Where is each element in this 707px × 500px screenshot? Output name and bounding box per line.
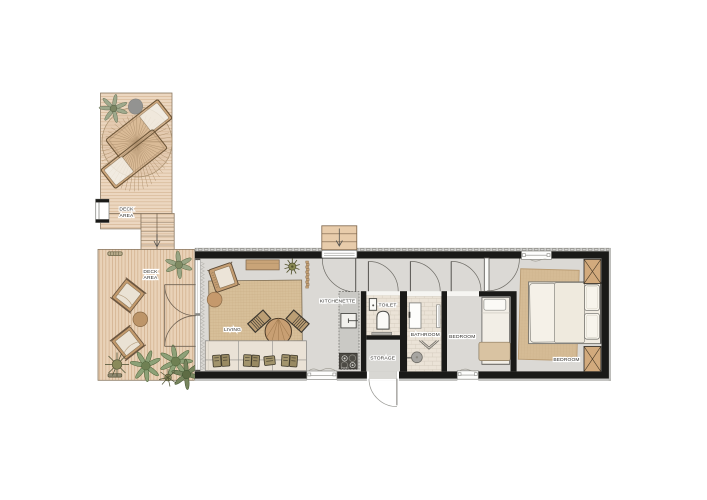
svg-text:DECK: DECK — [119, 207, 134, 213]
svg-text:KITCHENETTE: KITCHENETTE — [320, 298, 356, 304]
svg-text:LIVING: LIVING — [224, 327, 241, 333]
svg-text:AREA: AREA — [120, 213, 135, 219]
svg-text:DECK: DECK — [143, 269, 158, 275]
svg-text:BATHROOM: BATHROOM — [411, 332, 440, 338]
svg-text:AREA: AREA — [144, 275, 159, 281]
svg-text:STORAGE: STORAGE — [370, 356, 395, 362]
svg-text:BEDROOM: BEDROOM — [449, 334, 475, 340]
svg-text:BEDROOM: BEDROOM — [553, 357, 579, 363]
svg-text:TOILET: TOILET — [379, 303, 397, 309]
